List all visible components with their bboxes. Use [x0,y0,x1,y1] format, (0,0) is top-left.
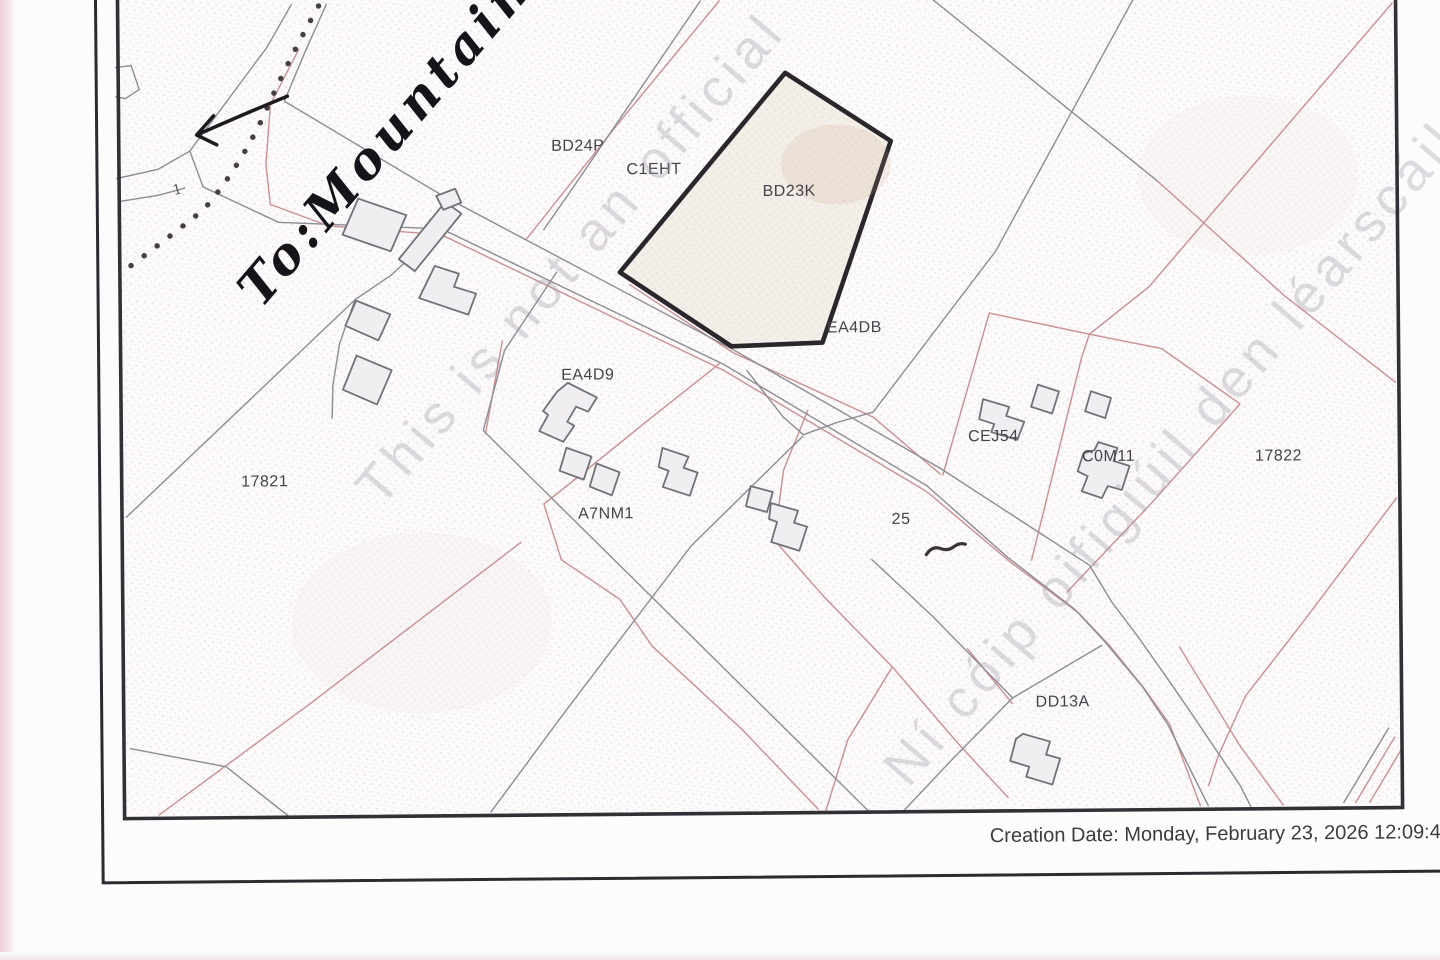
parcel-label-ea4db: EA4DB [827,319,882,336]
parcel-label-bd23k: BD23K [763,183,816,200]
parcel-label-bd24p: BD24P [551,137,604,154]
parcel-label-17822: 17822 [1255,447,1302,464]
parcel-label-cej54: CEJ54 [968,428,1019,445]
parcel-label-17821: 17821 [241,473,288,490]
scanned-map-page: To:Mountain 1 BD24P C1EHT BD23K EA4DB EA… [0,0,1440,960]
cadastral-map-scan: To:Mountain 1 BD24P C1EHT BD23K EA4DB EA… [0,0,1440,960]
map-scan-tilted-group: To:Mountain 1 BD24P C1EHT BD23K EA4DB EA… [95,0,1440,883]
parcel-label-25: 25 [892,511,911,528]
creation-date-text: Creation Date: Monday, February 23, 2026… [990,821,1440,847]
parcel-label-a7nm1: A7NM1 [578,505,634,522]
parcel-label-dd13a: DD13A [1036,693,1090,710]
parcel-label-ea4d9: EA4D9 [561,366,614,383]
